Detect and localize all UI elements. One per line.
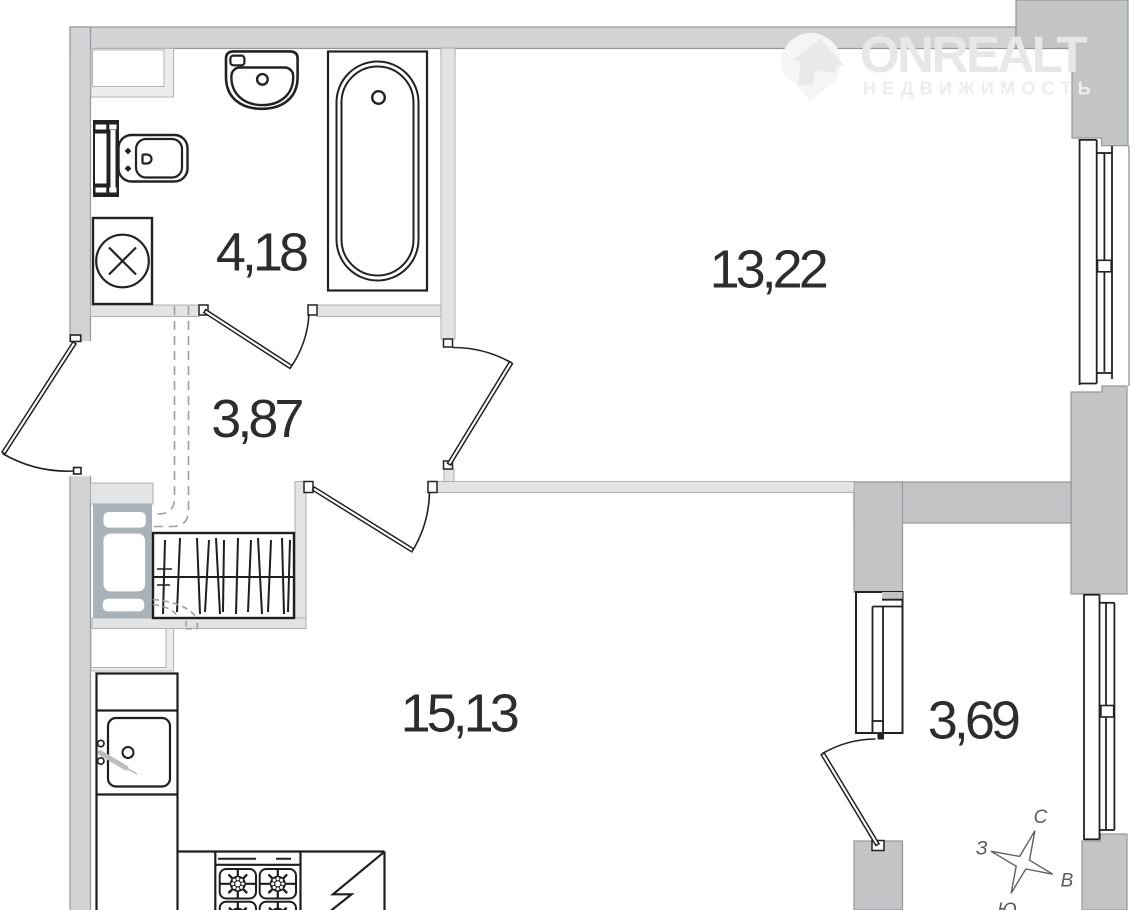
svg-text:3,87: 3,87 (211, 389, 302, 449)
svg-text:ONREALT: ONREALT (860, 26, 1088, 83)
svg-text:В: В (1061, 870, 1074, 891)
svg-text:4,18: 4,18 (216, 223, 307, 283)
svg-text:13,22: 13,22 (710, 240, 827, 300)
svg-text:НЕДВИЖИМОСТЬ: НЕДВИЖИМОСТЬ (863, 78, 1097, 98)
svg-text:15,13: 15,13 (401, 684, 518, 744)
svg-text:З: З (976, 838, 988, 859)
svg-text:Ю: Ю (997, 900, 1016, 910)
svg-text:С: С (1034, 807, 1048, 828)
svg-text:3,69: 3,69 (928, 691, 1019, 751)
